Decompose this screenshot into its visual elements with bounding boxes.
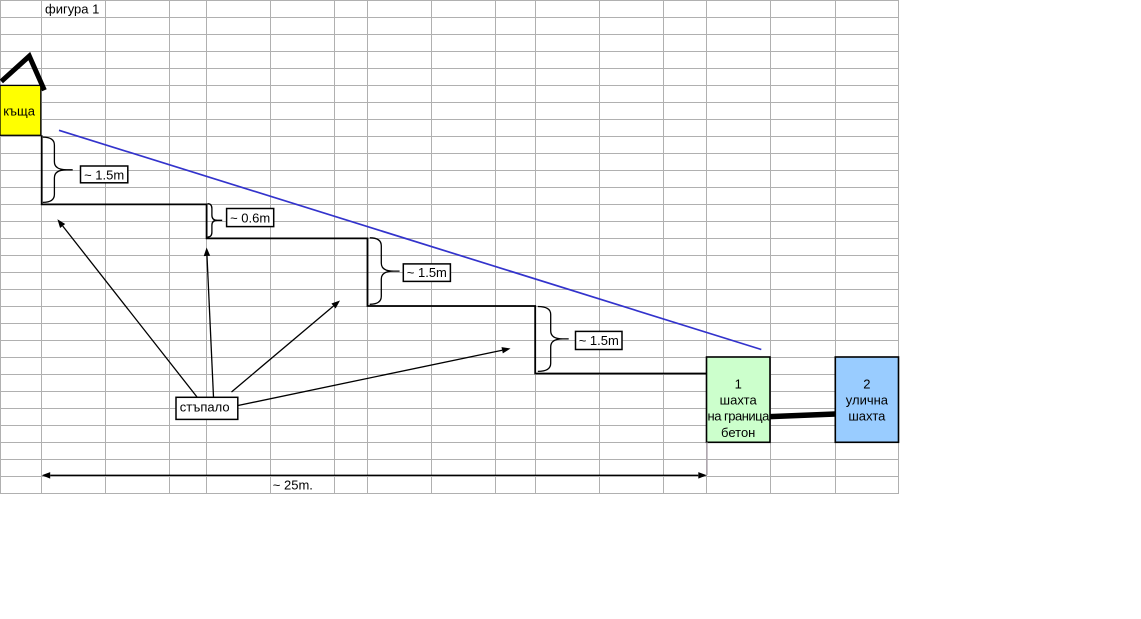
svg-text:къща: къща [3, 104, 36, 119]
svg-text:фигура 1: фигура 1 [45, 1, 99, 16]
svg-text:~ 1.5m: ~ 1.5m [579, 333, 619, 348]
svg-text:на граница: на граница [708, 409, 771, 424]
svg-text:~ 1.5m: ~ 1.5m [84, 168, 124, 183]
svg-text:2: 2 [863, 377, 870, 392]
svg-text:шахта: шахта [720, 392, 758, 407]
svg-text:бетон: бетон [721, 425, 755, 440]
svg-text:стъпало: стъпало [180, 399, 230, 414]
svg-text:улична: улична [846, 392, 889, 407]
svg-text:1: 1 [735, 377, 742, 392]
svg-text:~ 1.5m: ~ 1.5m [407, 265, 447, 280]
svg-text:~ 25m.: ~ 25m. [273, 478, 313, 493]
svg-text:~ 0.6m: ~ 0.6m [230, 210, 270, 225]
svg-text:шахта: шахта [848, 409, 886, 424]
